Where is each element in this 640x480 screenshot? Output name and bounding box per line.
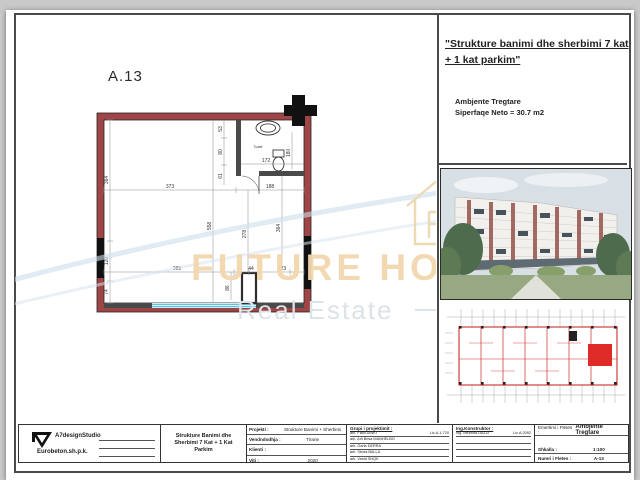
svg-text:123: 123 (278, 266, 287, 272)
svg-text:86: 86 (225, 285, 231, 291)
svg-text:558: 558 (207, 222, 213, 231)
svg-text:385: 385 (173, 266, 182, 272)
building-render (440, 168, 632, 300)
svg-text:278: 278 (242, 230, 248, 239)
titleblock-fields-cell: Projekti :Strukture Banimi + Sherbimi Ve… (247, 425, 347, 462)
titleblock-studio-cell: A7designStudio Eurobeton.sh.p.k. (19, 425, 161, 462)
toilet-room-label: Tualet (254, 145, 263, 149)
svg-text:44: 44 (248, 266, 254, 272)
contact-lines (99, 433, 155, 457)
scale-row: Shkalla :1:100 (535, 445, 628, 454)
team-member: ark. Vanid SHQK (350, 457, 449, 462)
svg-text:74: 74 (104, 289, 110, 295)
title-block: A7designStudio Eurobeton.sh.p.k. Struktu… (18, 424, 629, 463)
titleblock-sheet-cell: Emertimi i Fletes :Ambjente Tregtare Shk… (535, 425, 628, 462)
titleblock-team-cell: Grupi i projektimit : ark. Fladi DINKILi… (347, 425, 453, 462)
column (242, 273, 256, 303)
window-glass-line (152, 304, 256, 305)
left-wall-opening (97, 238, 104, 278)
svg-text:364: 364 (104, 176, 110, 185)
svg-text:120: 120 (104, 257, 110, 266)
sheet-name-row: Emertimi i Fletes :Ambjente Tregtare (535, 425, 628, 436)
unit-type: Ambjente Tregtare (455, 96, 544, 107)
svg-text:364: 364 (276, 224, 282, 233)
key-plan (439, 303, 631, 421)
field-projekti: Projekti :Strukture Banimi + Sherbimi (247, 425, 346, 435)
studio-logo (31, 431, 53, 451)
svg-text:373: 373 (166, 184, 175, 190)
right-wall-opening (304, 236, 311, 289)
unit-area: Siperfaqe Neto = 30.7 m2 (455, 107, 544, 118)
sheet-page: A.13 (6, 10, 634, 480)
right-panel-divider (439, 163, 627, 165)
svg-text:53: 53 (218, 126, 224, 132)
drawing-sheet: { "page": { "sheet_label": "A.13" }, "ri… (0, 0, 640, 480)
sheet-number-row: Numri i Fletes :A-13 (535, 454, 628, 462)
unit-info: Ambjente Tregtare Siperfaqe Neto = 30.7 … (455, 96, 544, 118)
project-name: Strukture Banimi dheSherbimi 7 Kat + 1 K… (161, 425, 246, 462)
floor-plan: 373 188 364 120 74 558 278 364 53 80 61 … (15, 14, 436, 422)
field-vendndodhja: Vendndodhja :Tirane (247, 435, 346, 445)
svg-text:61: 61 (218, 173, 224, 179)
svg-text:80: 80 (218, 149, 224, 155)
svg-text:172: 172 (262, 158, 271, 164)
titleblock-engineer-cell: Ing.Konstruktor : Ing. Miranda DAZZILic.… (453, 425, 535, 462)
svg-text:188: 188 (266, 184, 275, 190)
field-klienti: Klienti : (247, 445, 346, 455)
svg-text:180: 180 (286, 149, 292, 158)
company-name: Eurobeton.sh.p.k. (37, 449, 88, 455)
plan-walls (97, 95, 317, 312)
toilet-tank (273, 150, 284, 157)
field-viti: Viti :2020 (247, 456, 346, 462)
highlighted-unit (588, 344, 612, 366)
project-title: "Strukture banimi dhe sherbimi 7 kat + 1… (445, 36, 630, 68)
studio-name: A7designStudio (55, 433, 101, 439)
titleblock-project-cell: Strukture Banimi dheSherbimi 7 Kat + 1 K… (161, 425, 247, 462)
